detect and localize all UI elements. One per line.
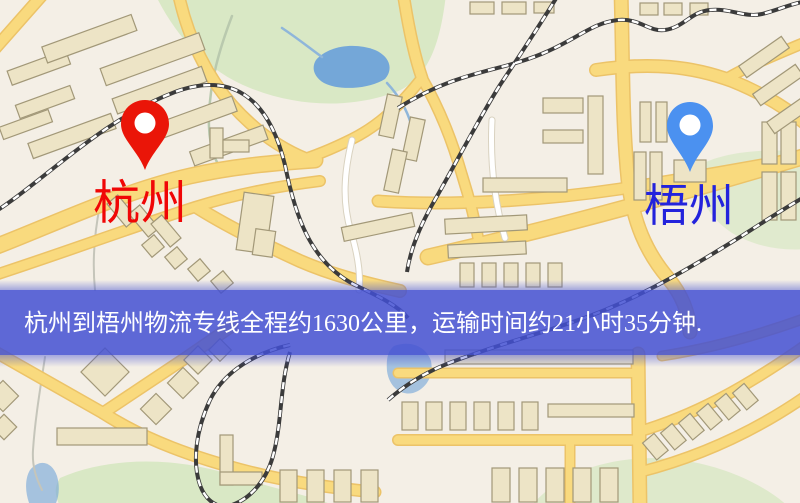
banner-glow-top	[0, 280, 800, 290]
origin-pin-hole	[135, 113, 156, 134]
route-info-text: 杭州到梧州物流专线全程约1630公里，运输时间约21小时35分钟.	[24, 310, 702, 337]
route-info-banner: 杭州到梧州物流专线全程约1630公里，运输时间约21小时35分钟.	[0, 280, 800, 367]
map-viewport: 杭州 梧州 杭州到梧州物流专线全程约1630公里，运输时间约21小时35分钟.	[0, 0, 800, 503]
map-canvas[interactable]: 杭州 梧州 杭州到梧州物流专线全程约1630公里，运输时间约21小时35分钟.	[0, 0, 800, 503]
destination-pin-hole	[680, 115, 701, 136]
destination-label: 梧州	[644, 181, 734, 231]
origin-label: 杭州	[93, 178, 187, 230]
banner-glow-bottom	[0, 355, 800, 367]
